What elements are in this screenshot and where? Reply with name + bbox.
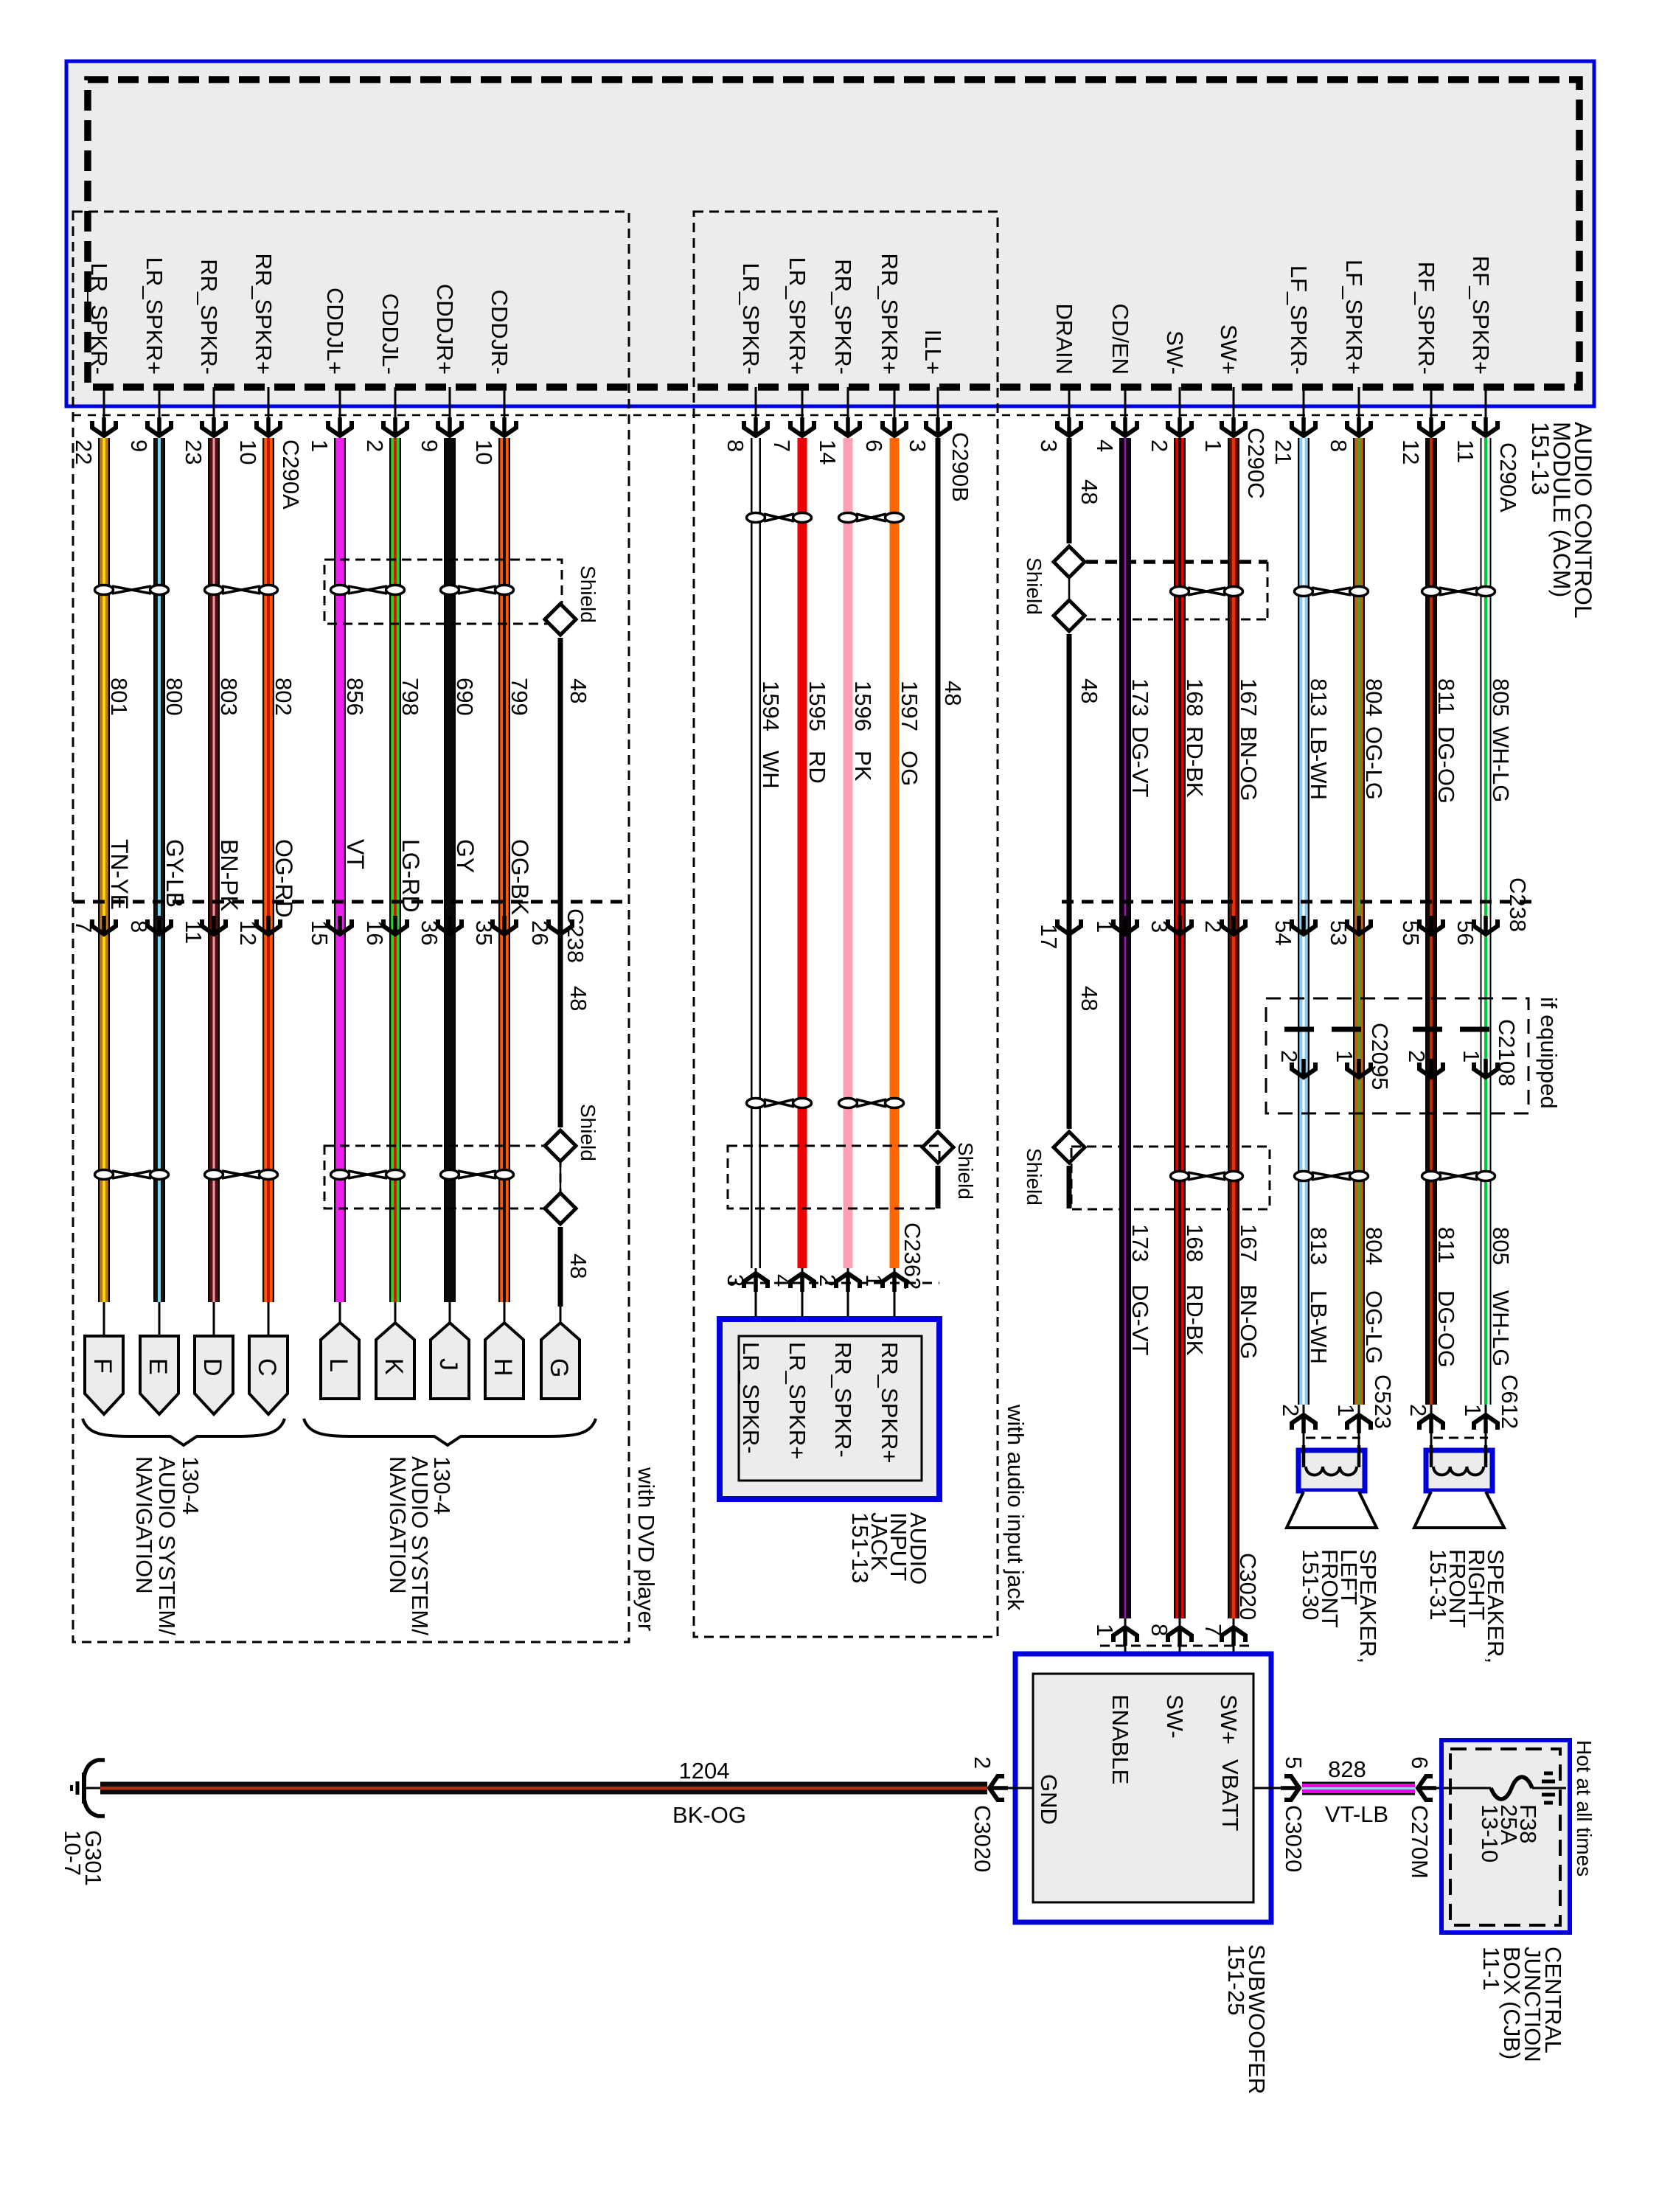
svg-text:15: 15 [307, 920, 333, 945]
svg-text:PK: PK [850, 751, 876, 782]
svg-text:800: 800 [161, 678, 187, 716]
svg-text:55: 55 [1398, 920, 1424, 945]
svg-text:WH-LG: WH-LG [1488, 726, 1514, 802]
svg-text:151-30: 151-30 [1298, 1549, 1324, 1621]
svg-text:C2095: C2095 [1367, 1023, 1393, 1090]
svg-text:H: H [489, 1358, 517, 1377]
svg-text:TN-YE: TN-YE [106, 839, 133, 910]
svg-text:VT-LB: VT-LB [1325, 1801, 1388, 1827]
svg-text:23: 23 [181, 439, 206, 465]
svg-text:RF_SPKR-: RF_SPKR- [1413, 262, 1439, 375]
svg-text:C238: C238 [563, 908, 588, 963]
svg-text:1204: 1204 [679, 1758, 730, 1784]
svg-text:173: 173 [1127, 1224, 1153, 1262]
svg-text:3: 3 [723, 1274, 748, 1287]
svg-text:130-4: 130-4 [178, 1456, 204, 1514]
svg-text:7: 7 [769, 439, 795, 452]
svg-text:C238: C238 [1505, 877, 1531, 932]
svg-text:811: 811 [1433, 678, 1459, 714]
svg-text:AUDIO SYSTEM/: AUDIO SYSTEM/ [154, 1456, 180, 1635]
svg-text:C290A: C290A [278, 439, 304, 509]
svg-text:5: 5 [1281, 1756, 1307, 1769]
svg-text:805: 805 [1488, 1227, 1514, 1265]
svg-text:801: 801 [106, 678, 132, 716]
svg-text:1595: 1595 [804, 681, 830, 731]
svg-text:2: 2 [1278, 1404, 1304, 1416]
svg-text:SW+: SW+ [1216, 324, 1242, 375]
svg-text:BK-OG: BK-OG [672, 1802, 746, 1828]
svg-text:VBATT: VBATT [1217, 1759, 1243, 1832]
svg-text:8: 8 [1326, 439, 1352, 452]
svg-text:GY: GY [452, 839, 479, 873]
svg-text:1: 1 [861, 1274, 887, 1287]
svg-text:48: 48 [566, 1253, 591, 1279]
svg-text:1596: 1596 [850, 681, 876, 731]
svg-text:NAVIGATION: NAVIGATION [131, 1456, 157, 1594]
svg-text:151-13: 151-13 [847, 1512, 873, 1584]
svg-text:2: 2 [970, 1756, 995, 1769]
svg-text:OG-LG: OG-LG [1361, 1290, 1387, 1364]
svg-text:804: 804 [1361, 1227, 1387, 1265]
svg-text:C290A: C290A [1495, 442, 1521, 512]
svg-text:17: 17 [1036, 924, 1062, 949]
svg-text:53: 53 [1326, 920, 1352, 945]
svg-text:WH-LG: WH-LG [1488, 1290, 1514, 1366]
svg-text:1: 1 [1460, 1404, 1486, 1416]
svg-text:856: 856 [342, 678, 368, 716]
svg-text:802: 802 [271, 678, 296, 716]
svg-text:151-13: 151-13 [1527, 422, 1554, 495]
svg-text:C290B: C290B [947, 432, 973, 502]
svg-text:L: L [324, 1358, 352, 1372]
svg-text:10-7: 10-7 [60, 1830, 86, 1876]
svg-text:3: 3 [905, 439, 931, 452]
svg-text:690: 690 [452, 678, 478, 716]
svg-text:LR_SPKR-: LR_SPKR- [86, 262, 112, 375]
svg-text:DRAIN: DRAIN [1051, 304, 1077, 375]
svg-text:SW-: SW- [1162, 1694, 1188, 1739]
svg-text:LR_SPKR+: LR_SPKR+ [785, 257, 810, 375]
svg-text:26: 26 [527, 920, 553, 945]
svg-text:803: 803 [216, 678, 242, 716]
svg-text:LF_SPKR-: LF_SPKR- [1286, 265, 1312, 375]
svg-text:48: 48 [940, 681, 966, 706]
svg-text:C3020: C3020 [970, 1805, 995, 1872]
svg-text:C2108: C2108 [1494, 1019, 1520, 1086]
svg-text:G: G [545, 1358, 573, 1377]
svg-text:LR_SPKR+: LR_SPKR+ [785, 1342, 810, 1459]
svg-text:828: 828 [1328, 1756, 1366, 1782]
svg-text:2: 2 [1405, 1404, 1431, 1416]
svg-text:LF_SPKR+: LF_SPKR+ [1341, 260, 1367, 375]
svg-text:2: 2 [1200, 920, 1226, 933]
svg-text:with DVD player: with DVD player [633, 1467, 659, 1631]
svg-text:4: 4 [769, 1274, 795, 1287]
svg-text:C2362: C2362 [900, 1222, 925, 1290]
svg-text:36: 36 [417, 920, 442, 945]
svg-text:35: 35 [471, 920, 497, 945]
svg-text:54: 54 [1270, 920, 1296, 945]
svg-text:SW+: SW+ [1216, 1694, 1242, 1745]
svg-text:RR_SPKR-: RR_SPKR- [830, 259, 856, 375]
svg-text:6: 6 [861, 439, 887, 452]
svg-text:2: 2 [1404, 1050, 1430, 1062]
svg-text:805: 805 [1488, 678, 1514, 717]
svg-text:168: 168 [1182, 1224, 1208, 1262]
svg-text:Shield: Shield [577, 1104, 599, 1161]
svg-text:if equipped: if equipped [1536, 997, 1562, 1109]
svg-text:151-25: 151-25 [1223, 1944, 1249, 2016]
svg-text:LR_SPKR-: LR_SPKR- [738, 1342, 764, 1454]
svg-text:8: 8 [723, 439, 748, 452]
svg-text:with audio input jack: with audio input jack [1003, 1404, 1029, 1611]
svg-text:LB-WH: LB-WH [1306, 1290, 1332, 1364]
svg-text:811: 811 [1433, 1227, 1459, 1263]
svg-text:DG-OG: DG-OG [1433, 1290, 1459, 1368]
svg-text:RR_SPKR-: RR_SPKR- [830, 1342, 856, 1458]
svg-text:804: 804 [1361, 678, 1387, 717]
svg-text:1597: 1597 [897, 681, 922, 731]
svg-text:RF_SPKR+: RF_SPKR+ [1468, 256, 1494, 375]
svg-text:C523: C523 [1370, 1374, 1396, 1429]
svg-text:C290C: C290C [1243, 428, 1269, 499]
svg-text:173: 173 [1127, 678, 1153, 717]
svg-text:OG-BK: OG-BK [507, 839, 533, 915]
svg-text:1: 1 [1332, 1050, 1357, 1062]
svg-text:C270M: C270M [1407, 1805, 1433, 1879]
svg-text:2: 2 [362, 439, 388, 452]
svg-text:E: E [144, 1358, 172, 1375]
svg-text:2: 2 [815, 1274, 841, 1287]
svg-text:3: 3 [1036, 439, 1062, 452]
svg-text:WH: WH [758, 751, 784, 789]
svg-text:4: 4 [1092, 439, 1118, 452]
svg-text:VT: VT [342, 839, 369, 869]
svg-text:OG: OG [897, 751, 922, 786]
svg-text:Shield: Shield [1023, 557, 1046, 615]
svg-text:DG-VT: DG-VT [1127, 1284, 1153, 1356]
svg-text:56: 56 [1453, 920, 1478, 945]
svg-text:C612: C612 [1497, 1374, 1523, 1429]
svg-text:1: 1 [1092, 1624, 1118, 1636]
svg-text:CDDJR+: CDDJR+ [432, 284, 458, 375]
svg-text:C3020: C3020 [1235, 1553, 1261, 1620]
svg-text:2: 2 [1276, 1050, 1302, 1062]
svg-text:OG-RD: OG-RD [271, 839, 297, 918]
svg-text:DG-VT: DG-VT [1127, 726, 1153, 798]
svg-text:7: 7 [1200, 1624, 1226, 1636]
svg-text:168: 168 [1182, 678, 1208, 717]
svg-text:RD-BK: RD-BK [1182, 1284, 1208, 1356]
svg-text:C3020: C3020 [1281, 1805, 1307, 1872]
svg-text:22: 22 [71, 439, 97, 465]
svg-text:11: 11 [181, 920, 206, 944]
svg-text:J: J [434, 1358, 462, 1371]
svg-text:10: 10 [235, 439, 261, 465]
svg-text:NAVIGATION: NAVIGATION [385, 1456, 411, 1594]
svg-text:LB-WH: LB-WH [1306, 726, 1332, 800]
svg-text:14: 14 [815, 439, 841, 465]
svg-text:1: 1 [1458, 1050, 1484, 1062]
svg-text:CDDJL-: CDDJL- [378, 293, 403, 375]
svg-text:2: 2 [1147, 439, 1172, 452]
svg-text:RR_SPKR+: RR_SPKR+ [877, 1342, 902, 1464]
svg-text:RR_SPKR-: RR_SPKR- [196, 259, 222, 375]
svg-text:GND: GND [1036, 1774, 1062, 1825]
svg-text:GY-LB: GY-LB [161, 839, 188, 908]
svg-text:ILL+: ILL+ [920, 330, 946, 375]
svg-text:Hot at all times: Hot at all times [1573, 1740, 1596, 1877]
svg-text:OG-LG: OG-LG [1361, 726, 1387, 800]
svg-text:48: 48 [1077, 479, 1102, 504]
svg-text:12: 12 [1398, 439, 1424, 465]
svg-text:1: 1 [1333, 1404, 1359, 1416]
svg-text:1: 1 [1200, 439, 1226, 452]
svg-text:9: 9 [126, 439, 152, 452]
svg-text:DG-OG: DG-OG [1433, 726, 1459, 804]
svg-text:151-31: 151-31 [1425, 1549, 1451, 1621]
svg-text:LR_SPKR-: LR_SPKR- [738, 262, 764, 375]
svg-text:1594: 1594 [758, 681, 784, 731]
svg-text:Shield: Shield [954, 1142, 977, 1200]
svg-text:48: 48 [1077, 986, 1102, 1011]
svg-text:CD/EN: CD/EN [1107, 304, 1133, 375]
svg-text:11-1: 11-1 [1478, 1947, 1504, 1991]
svg-text:ENABLE: ENABLE [1107, 1694, 1133, 1784]
svg-text:Shield: Shield [577, 566, 599, 623]
svg-text:11: 11 [1453, 439, 1478, 463]
svg-text:RR_SPKR+: RR_SPKR+ [877, 253, 902, 375]
svg-text:10: 10 [471, 439, 497, 465]
svg-text:F: F [88, 1358, 116, 1374]
svg-text:CDDJL+: CDDJL+ [322, 288, 348, 375]
svg-text:RR_SPKR+: RR_SPKR+ [251, 253, 276, 375]
svg-text:12: 12 [235, 920, 261, 945]
svg-text:BN-OG: BN-OG [1236, 726, 1262, 801]
svg-text:16: 16 [362, 920, 388, 945]
svg-text:813: 813 [1306, 1227, 1332, 1265]
svg-text:1: 1 [307, 439, 333, 452]
svg-text:D: D [198, 1358, 226, 1377]
svg-text:RD-BK: RD-BK [1182, 726, 1208, 798]
svg-text:SW-: SW- [1162, 330, 1188, 375]
svg-text:6: 6 [1407, 1756, 1433, 1769]
svg-text:13-10: 13-10 [1477, 1804, 1503, 1863]
svg-text:799: 799 [507, 678, 532, 716]
svg-text:21: 21 [1270, 439, 1296, 465]
svg-text:8: 8 [1147, 1624, 1172, 1636]
svg-text:LR_SPKR+: LR_SPKR+ [142, 257, 167, 375]
svg-text:7: 7 [71, 920, 97, 933]
svg-text:798: 798 [397, 678, 423, 716]
svg-text:9: 9 [417, 439, 442, 452]
svg-text:48: 48 [566, 678, 591, 703]
svg-text:167: 167 [1236, 1224, 1262, 1262]
svg-text:BN-OG: BN-OG [1236, 1284, 1262, 1360]
svg-text:1: 1 [1092, 920, 1118, 933]
svg-text:3: 3 [1147, 920, 1172, 933]
svg-text:RD: RD [804, 751, 830, 784]
svg-text:CDDJR-: CDDJR- [487, 290, 512, 375]
svg-text:8: 8 [126, 920, 152, 933]
svg-text:K: K [380, 1358, 408, 1375]
svg-text:813: 813 [1306, 678, 1332, 717]
svg-text:48: 48 [566, 986, 591, 1011]
svg-text:48: 48 [1077, 678, 1102, 703]
svg-text:C: C [253, 1358, 281, 1377]
svg-text:167: 167 [1236, 678, 1262, 717]
svg-text:Shield: Shield [1023, 1148, 1046, 1206]
